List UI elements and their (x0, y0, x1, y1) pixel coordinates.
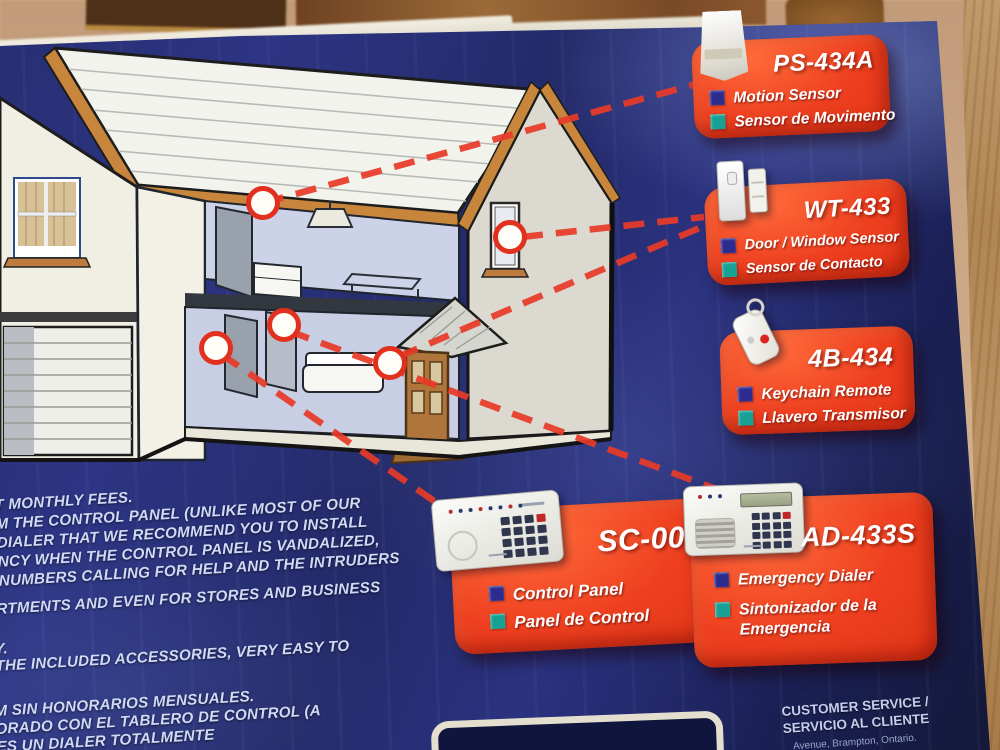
english-bullet-square (737, 386, 753, 402)
remote-gray-button (746, 336, 755, 345)
feature-label-es: Sintonizador de la Emergencia (739, 595, 900, 641)
spanish-bullet-square (490, 613, 506, 629)
remote-red-button (759, 333, 771, 345)
speaker-dial (446, 530, 479, 563)
feature-label-en: Emergency Dialer (738, 566, 874, 591)
callout-ad433s: AD-433S Emergency Dialer Sintonizador de… (689, 492, 938, 668)
feature-label-en: Motion Sensor (733, 84, 841, 108)
feature-label-es: Sensor de Movimento (734, 105, 896, 131)
sensor-location-markers (202, 189, 525, 378)
led-indicators (449, 503, 523, 513)
model-label: AD-433S (800, 518, 916, 553)
feature-label-es: Panel de Control (514, 605, 650, 633)
english-bullet-square (714, 572, 730, 588)
sensor-button (727, 172, 738, 186)
product-box-photo: PS-434A Motion Sensor Sensor de Moviment… (0, 0, 1000, 750)
english-bullet-square (720, 238, 736, 254)
motion-sensor-image (698, 10, 749, 82)
emergency-dialer-image (683, 482, 805, 556)
model-label: 4B-434 (808, 342, 894, 374)
speaker-grille (695, 518, 736, 549)
connector-dashed-lines (221, 83, 792, 523)
sensor-magnet (748, 168, 768, 213)
feature-label-es: Sensor de Contacto (745, 253, 883, 278)
lcd-display (740, 492, 792, 508)
callout-wt433: WT-433 Door / Window Sensor Sensor de Co… (704, 178, 911, 286)
keypad (751, 512, 792, 549)
led-indicators (698, 494, 722, 499)
control-panel-image (431, 489, 565, 572)
model-label: PS-434A (773, 46, 875, 78)
english-bullet-square (488, 585, 504, 601)
brand-logo (522, 502, 544, 507)
sensor-lens (704, 48, 742, 60)
spanish-bullet-square (738, 410, 754, 426)
spanish-bullet-square (715, 602, 731, 618)
keypad (500, 514, 548, 559)
callout-ps434a: PS-434A Motion Sensor Sensor de Moviment… (691, 34, 891, 139)
english-bullet-square (709, 90, 725, 106)
sensor-body (716, 160, 746, 221)
feature-label-es: Llavero Transmisor (762, 404, 906, 428)
spanish-bullet-square (721, 262, 737, 278)
feature-label-en: Control Panel (512, 578, 623, 605)
feature-label-en: Keychain Remote (761, 380, 892, 404)
callout-4b434: 4B-434 Keychain Remote Llavero Transmiso… (719, 326, 915, 436)
spanish-bullet-square (710, 114, 726, 130)
model-label: WT-433 (803, 193, 891, 226)
